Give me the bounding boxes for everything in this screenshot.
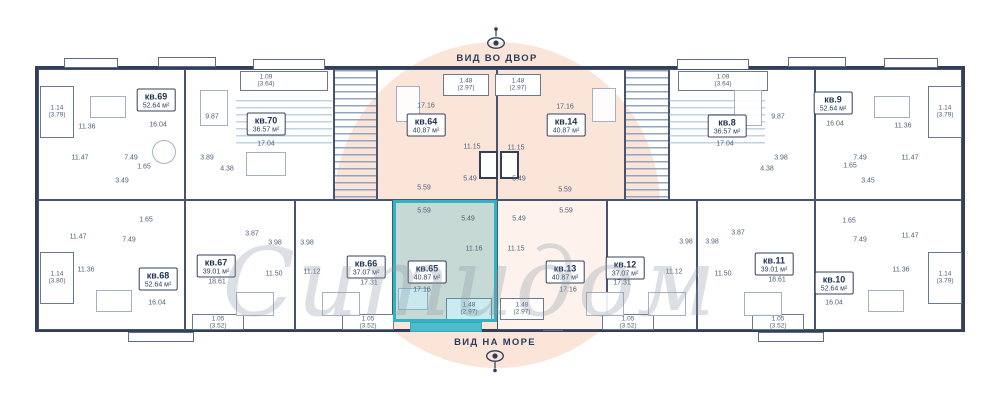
room-area-label: 5.49 bbox=[463, 176, 477, 183]
balcony-tab bbox=[158, 57, 216, 67]
apartment-tag-kv8[interactable]: кв.836.57 м² bbox=[708, 115, 747, 138]
apartment-area: 39.01 м² bbox=[761, 267, 788, 274]
room-area-label: 16.04 bbox=[826, 121, 844, 128]
room-area-label: 5.59 bbox=[559, 208, 573, 215]
balcony-tab bbox=[788, 57, 846, 67]
apartment-area: 52.64 м² bbox=[145, 282, 172, 289]
furniture bbox=[246, 152, 286, 176]
furniture bbox=[648, 292, 686, 316]
room-area-label: 11.15 bbox=[464, 144, 481, 151]
furniture bbox=[236, 292, 274, 316]
balcony-label: 1.48(2.97) bbox=[510, 78, 527, 93]
room-area-label: 1.65 bbox=[139, 217, 153, 224]
room-area-label: 1.65 bbox=[137, 164, 151, 171]
eye-icon-sea bbox=[483, 348, 507, 374]
room-area-label: 11.12 bbox=[304, 269, 321, 276]
apartment-number: кв.70 bbox=[253, 116, 280, 126]
furniture bbox=[322, 292, 360, 316]
apartment-area: 40.87 м² bbox=[553, 128, 580, 135]
apartment-area: 36.57 м² bbox=[714, 129, 741, 136]
room-area-label: 11.36 bbox=[895, 123, 912, 130]
apartment-area: 36.57 м² bbox=[253, 127, 280, 134]
apartment-area: 52.64 м² bbox=[821, 286, 848, 293]
room-area-label: 11.36 bbox=[78, 267, 95, 274]
room-area-label: 11.47 bbox=[70, 234, 87, 241]
apartment-tag-kv70[interactable]: кв.7036.57 м² bbox=[247, 113, 286, 136]
apartment-number: кв.11 bbox=[761, 256, 788, 266]
apartment-area: 40.87 м² bbox=[552, 275, 579, 282]
apartment-number: кв.13 bbox=[552, 264, 579, 274]
apartment-number: кв.66 bbox=[353, 259, 380, 269]
apartment-area: 40.87 м² bbox=[414, 275, 441, 282]
apartment-area: 52.64 м² bbox=[143, 103, 170, 110]
room-area-label: 5.49 bbox=[461, 216, 475, 223]
balcony-label: 1.48(2.97) bbox=[461, 302, 478, 317]
room-area-label: 5.49 bbox=[512, 176, 526, 183]
balcony-label: 1.05(3.52) bbox=[210, 316, 227, 331]
apartment-tag-kv11[interactable]: кв.1139.01 м² bbox=[755, 253, 794, 276]
room-area-label: 3.98 bbox=[268, 240, 282, 247]
balcony-tab bbox=[758, 332, 824, 342]
balcony-label: 1.05(3.52) bbox=[360, 316, 377, 331]
room-area-label: 3.49 bbox=[115, 178, 129, 185]
apartment-area: 37.07 м² bbox=[353, 270, 380, 277]
highlighted-balcony-railing bbox=[410, 322, 482, 332]
staircase-right bbox=[625, 69, 669, 200]
room-area-label: 17.04 bbox=[257, 141, 275, 148]
balcony-label: 1.14(3.79) bbox=[49, 105, 66, 120]
room-area-label: 5.59 bbox=[558, 187, 572, 194]
apartment-number: кв.12 bbox=[612, 260, 639, 270]
balcony-label: 1.14(3.80) bbox=[49, 271, 66, 286]
furniture bbox=[868, 290, 904, 312]
balcony-label: 1.09(3.64) bbox=[715, 74, 732, 89]
furniture bbox=[874, 96, 910, 118]
balcony-tab bbox=[128, 332, 194, 342]
balcony-box bbox=[240, 71, 328, 91]
room-area-label: 9.87 bbox=[771, 114, 785, 121]
apartment-number: кв.10 bbox=[821, 275, 848, 285]
balcony-label: 1.48(2.97) bbox=[514, 302, 531, 317]
room-area-label: 5.59 bbox=[417, 185, 431, 192]
apartment-tag-kv10[interactable]: кв.1052.64 м² bbox=[815, 272, 854, 295]
room-area-label: 7.49 bbox=[853, 155, 867, 162]
room-area-label: 3.98 bbox=[705, 239, 719, 246]
room-area-label: 11.47 bbox=[902, 233, 919, 240]
room-area-label: 11.50 bbox=[715, 271, 732, 278]
room-area-label: 1.65 bbox=[843, 163, 857, 170]
furniture bbox=[96, 290, 132, 312]
apartment-number: кв.9 bbox=[820, 95, 847, 105]
room-area-label: 11.47 bbox=[72, 155, 89, 162]
balcony-tab bbox=[64, 58, 118, 68]
apartment-area: 37.07 м² bbox=[612, 271, 639, 278]
staircase-left bbox=[334, 69, 377, 200]
room-area-label: 17.31 bbox=[613, 280, 631, 287]
balcony-label: 1.09(3.64) bbox=[258, 74, 275, 89]
apartment-number: кв.67 bbox=[203, 258, 230, 268]
room-area-label: 7.49 bbox=[124, 155, 138, 162]
balcony-label: 1.48(2.97) bbox=[458, 78, 475, 93]
room-area-label: 16.04 bbox=[148, 300, 166, 307]
apartment-tag-kv69[interactable]: кв.6952.64 м² bbox=[137, 89, 176, 112]
apartment-number: кв.68 bbox=[145, 271, 172, 281]
apartment-area: 39.01 м² bbox=[203, 269, 230, 276]
room-area-label: 4.38 bbox=[220, 166, 234, 173]
balcony-label: 1.14(3.79) bbox=[937, 105, 954, 120]
room-area-label: 3.98 bbox=[300, 240, 314, 247]
room-area-label: 5.49 bbox=[512, 216, 526, 223]
apartment-tag-kv68[interactable]: кв.6852.64 м² bbox=[139, 268, 178, 291]
apartment-area: 52.64 м² bbox=[820, 106, 847, 113]
apartment-number: кв.69 bbox=[143, 92, 170, 102]
room-area-label: 3.98 bbox=[679, 239, 693, 246]
balcony-label: 1.14(3.79) bbox=[937, 271, 954, 286]
room-area-label: 18.61 bbox=[768, 277, 786, 284]
apartment-number: кв.64 bbox=[413, 117, 440, 127]
apartment-number: кв.65 bbox=[414, 264, 441, 274]
room-area-label: 4.38 bbox=[760, 166, 774, 173]
room-area-label: 3.98 bbox=[774, 155, 788, 162]
elevator bbox=[479, 151, 498, 179]
furniture bbox=[152, 140, 176, 164]
balcony-label: 1.05(3.52) bbox=[770, 316, 787, 331]
room-area-label: 7.49 bbox=[853, 237, 867, 244]
view-sea-label: ВИД НА МОРЕ bbox=[454, 337, 536, 348]
room-area-label: 11.15 bbox=[508, 246, 525, 253]
furniture bbox=[592, 88, 616, 122]
room-area-label: 17.16 bbox=[417, 103, 435, 110]
apartment-tag-kv9[interactable]: кв.952.64 м² bbox=[814, 92, 853, 115]
room-area-label: 17.31 bbox=[360, 280, 378, 287]
room-area-label: 9.87 bbox=[205, 114, 219, 121]
room-area-label: 16.04 bbox=[149, 122, 167, 129]
eye-icon-courtyard bbox=[484, 26, 508, 52]
room-area-label: 3.87 bbox=[245, 231, 259, 238]
room-area-label: 11.47 bbox=[902, 155, 919, 162]
room-area-label: 11.36 bbox=[79, 124, 96, 131]
furniture bbox=[744, 292, 782, 316]
room-area-label: 3.89 bbox=[200, 155, 214, 162]
apartment-number: кв.14 bbox=[553, 117, 580, 127]
room-area-label: 5.59 bbox=[417, 208, 431, 215]
room-area-label: 7.49 bbox=[122, 237, 136, 244]
balcony-tab bbox=[884, 58, 938, 68]
furniture bbox=[586, 292, 624, 316]
apartment-tag-kv14[interactable]: кв.1440.87 м² bbox=[547, 114, 586, 137]
room-area-label: 3.87 bbox=[731, 230, 745, 237]
room-area-label: 16.04 bbox=[825, 300, 843, 307]
room-area-label: 1.65 bbox=[842, 218, 856, 225]
apartment-tag-kv66[interactable]: кв.6637.07 м² bbox=[347, 256, 386, 279]
apartment-number: кв.8 bbox=[714, 118, 741, 128]
furniture bbox=[200, 90, 228, 126]
room-area-label: 17.04 bbox=[716, 141, 734, 148]
room-area-label: 17.16 bbox=[556, 104, 574, 111]
furniture bbox=[90, 96, 126, 118]
room-area-label: 17.16 bbox=[559, 287, 577, 294]
room-area-label: 3.45 bbox=[861, 178, 875, 185]
apartment-tag-kv65[interactable]: кв.6540.87 м² bbox=[408, 261, 447, 284]
room-area-label: 17.16 bbox=[413, 287, 431, 294]
room-area-label: 18.61 bbox=[208, 279, 226, 286]
apartment-area: 40.87 м² bbox=[413, 128, 440, 135]
room-area-label: 11.36 bbox=[893, 267, 910, 274]
room-area-label: 11.16 bbox=[466, 246, 483, 253]
room-area-label: 11.12 bbox=[666, 269, 683, 276]
balcony-label: 1.05(3.52) bbox=[620, 316, 637, 331]
view-courtyard-label: ВИД ВО ДВОР bbox=[456, 53, 537, 64]
apartment-tag-kv67[interactable]: кв.6739.01 м² bbox=[197, 255, 236, 278]
room-area-label: 11.15 bbox=[508, 145, 525, 152]
floorplan-canvas: кв.6952.64 м² кв.7036.57 м² кв.6440.87 м… bbox=[0, 0, 1000, 406]
apartment-tag-kv64[interactable]: кв.6440.87 м² bbox=[407, 114, 446, 137]
room-area-label: 11.50 bbox=[266, 271, 283, 278]
apartment-tag-kv12[interactable]: кв.1237.07 м² bbox=[606, 257, 645, 280]
apartment-tag-kv13[interactable]: кв.1340.87 м² bbox=[546, 261, 585, 284]
